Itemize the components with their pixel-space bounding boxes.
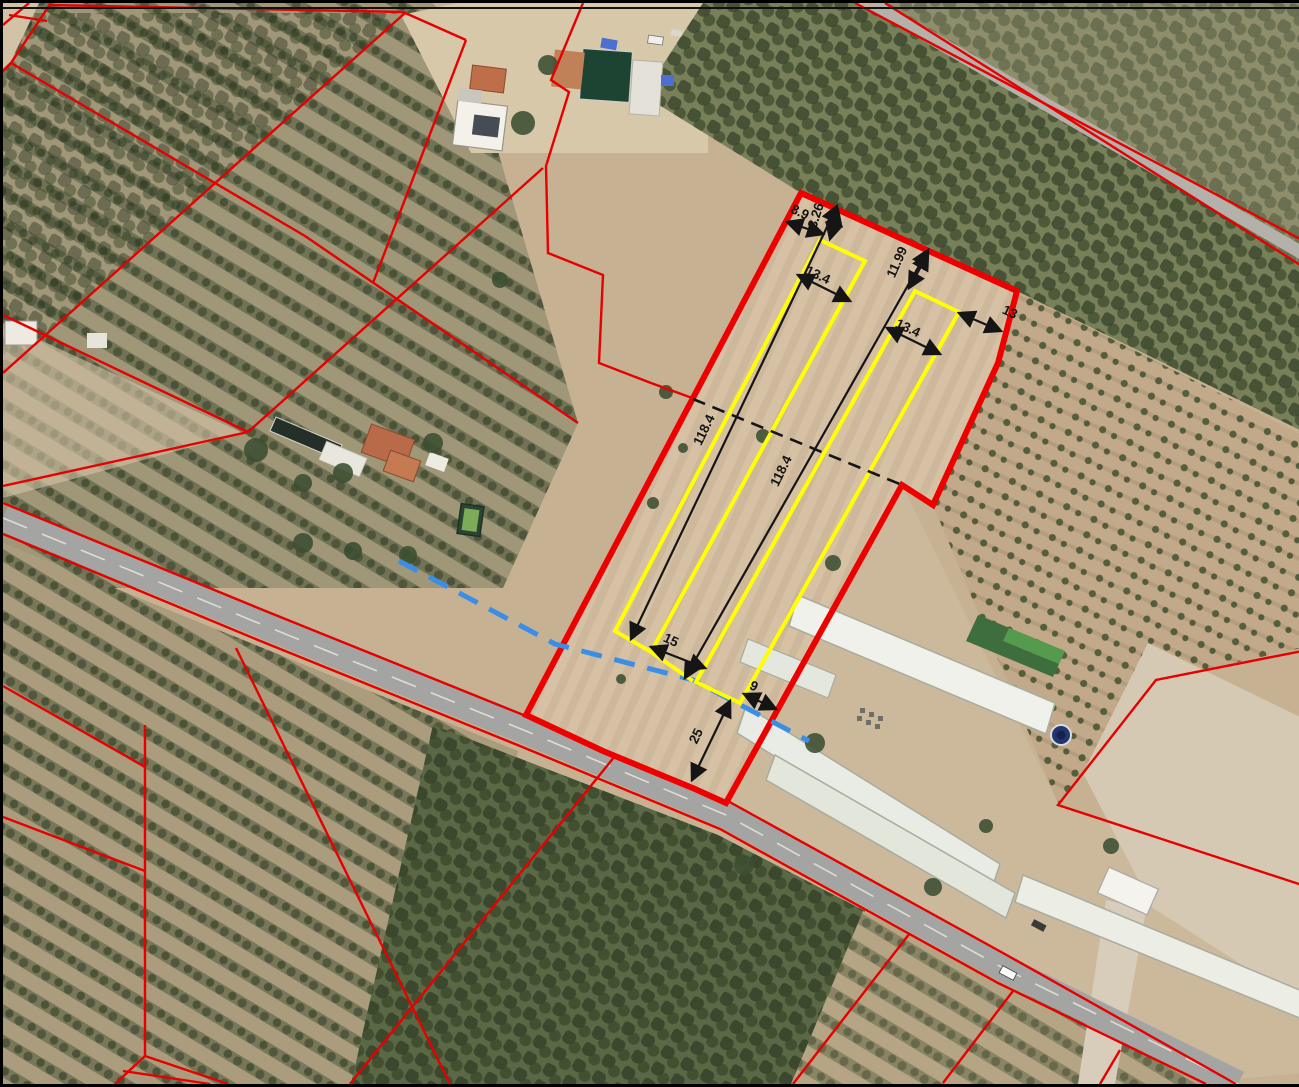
barn-dark-roof [472,114,500,137]
tile-roof-house-top [470,65,507,93]
water-tank-center [1057,731,1066,740]
frame-inner-line [3,7,1299,9]
green-pond [462,508,480,532]
reservoir-pool-top [579,48,632,102]
pool-apron [629,60,663,116]
map-svg: 8.9 3.26 13.4 11.99 13.4 13 118.4 118.4 … [3,3,1299,1084]
aerial-map-canvas: 8.9 3.26 13.4 11.99 13.4 13 118.4 118.4 … [0,0,1299,1087]
shed-left-small [87,333,107,348]
blue-tarp-2 [661,75,674,86]
vehicle-top-1 [648,35,664,45]
